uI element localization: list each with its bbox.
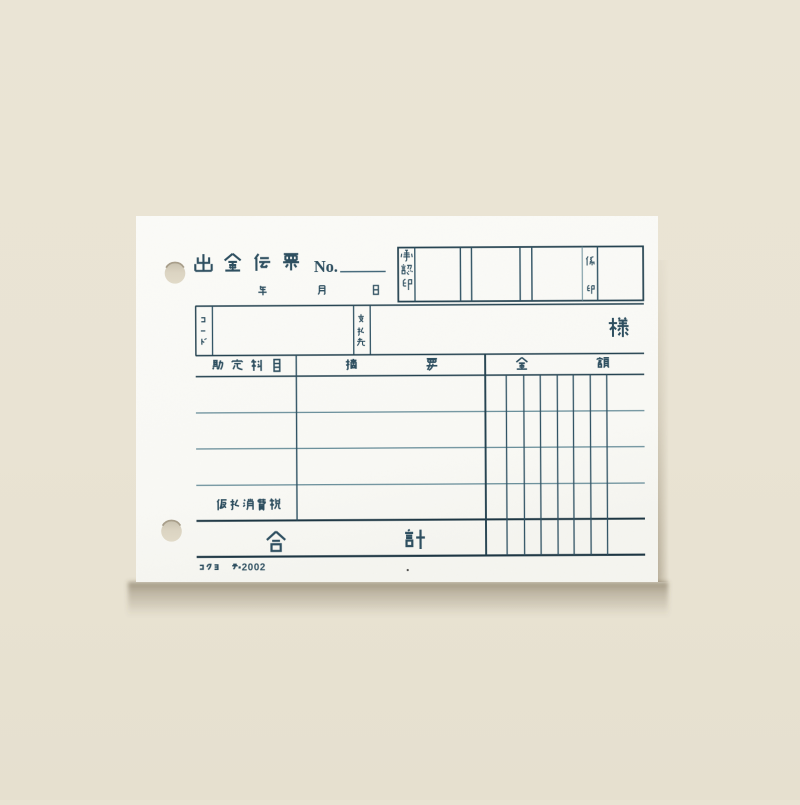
svg-text:No.: No. bbox=[314, 257, 338, 276]
svg-text:2002: 2002 bbox=[242, 562, 266, 573]
